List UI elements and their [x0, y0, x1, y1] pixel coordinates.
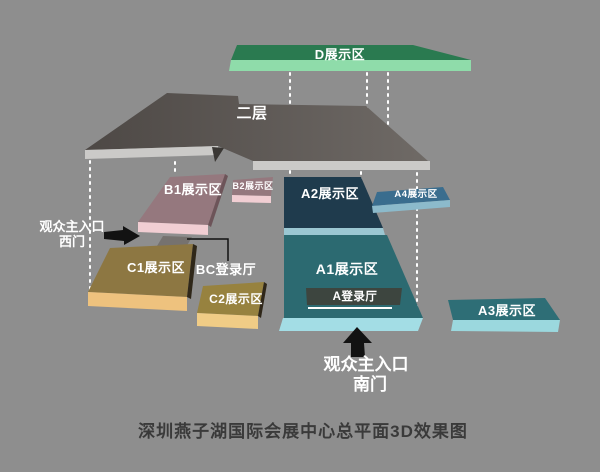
exhibition-center-3d-plan: D展示区 二层 B1展示区 B2展示区 BC登录厅 C1展示区 C2展示区 [0, 0, 600, 472]
c2-zone: C2展示区 [197, 282, 267, 329]
a3-zone-label: A3展示区 [478, 303, 536, 318]
a1-zone-front-face [279, 318, 423, 331]
b2-zone-label: B2展示区 [232, 181, 273, 191]
south-entrance-label-line2: 南门 [353, 374, 387, 394]
b2-zone: B2展示区 [232, 177, 274, 203]
a2-zone-label: A2展示区 [301, 186, 359, 201]
bc-hall-label: BC登录厅 [196, 262, 256, 277]
b1-zone-label: B1展示区 [164, 182, 222, 197]
second-floor-front-right [253, 161, 430, 170]
c1-zone-label: C1展示区 [127, 260, 185, 275]
west-entrance-label-line2: 西门 [59, 234, 85, 249]
west-entrance-label-line1: 观众主入口 [39, 219, 104, 234]
plan-3d-canvas: D展示区 二层 B1展示区 B2展示区 BC登录厅 C1展示区 C2展示区 [0, 0, 600, 472]
d-zone-label: D展示区 [315, 47, 365, 62]
south-entrance-label-line1: 观众主入口 [323, 354, 409, 374]
b2-zone-front-face [232, 195, 271, 203]
a4-zone-label: A4展示区 [394, 189, 437, 200]
a-hall-label: A登录厅 [333, 289, 378, 303]
a1-zone-label: A1展示区 [316, 261, 378, 277]
a3-zone-front-face [451, 320, 560, 332]
c2-zone-label: C2展示区 [209, 292, 263, 306]
plan-caption: 深圳燕子湖国际会展中心总平面3D效果图 [138, 421, 468, 441]
a3-zone: A3展示区 [448, 298, 560, 332]
second-floor-label: 二层 [236, 105, 267, 122]
a2-zone-front-face [284, 228, 385, 235]
